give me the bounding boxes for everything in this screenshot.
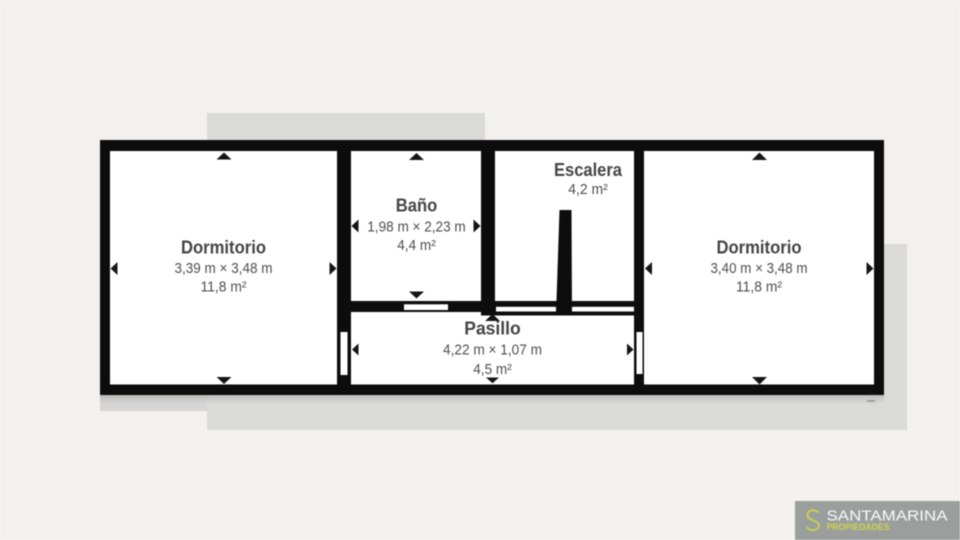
svg-text:3,39 m × 3,48 m: 3,39 m × 3,48 m	[175, 261, 273, 277]
svg-text:Pasillo: Pasillo	[464, 319, 521, 339]
svg-text:3,40 m × 3,48 m: 3,40 m × 3,48 m	[711, 261, 808, 277]
svg-text:4,4 m²: 4,4 m²	[397, 238, 436, 254]
svg-text:4,5 m²: 4,5 m²	[473, 362, 512, 378]
svg-text:Dormitorio: Dormitorio	[717, 237, 802, 257]
svg-text:4,22 m × 1,07 m: 4,22 m × 1,07 m	[443, 343, 542, 359]
svg-text:Escalera: Escalera	[554, 160, 623, 180]
svg-text:PROPIEDADES: PROPIEDADES	[827, 522, 890, 532]
svg-text:4,2 m²: 4,2 m²	[568, 182, 608, 198]
svg-text:11,8 m²: 11,8 m²	[201, 279, 247, 295]
svg-text:11,8 m²: 11,8 m²	[736, 279, 782, 295]
svg-text:Baño: Baño	[396, 196, 438, 216]
svg-text:Dormitorio: Dormitorio	[181, 237, 266, 257]
svg-text:1,98 m × 2,23 m: 1,98 m × 2,23 m	[367, 220, 466, 236]
